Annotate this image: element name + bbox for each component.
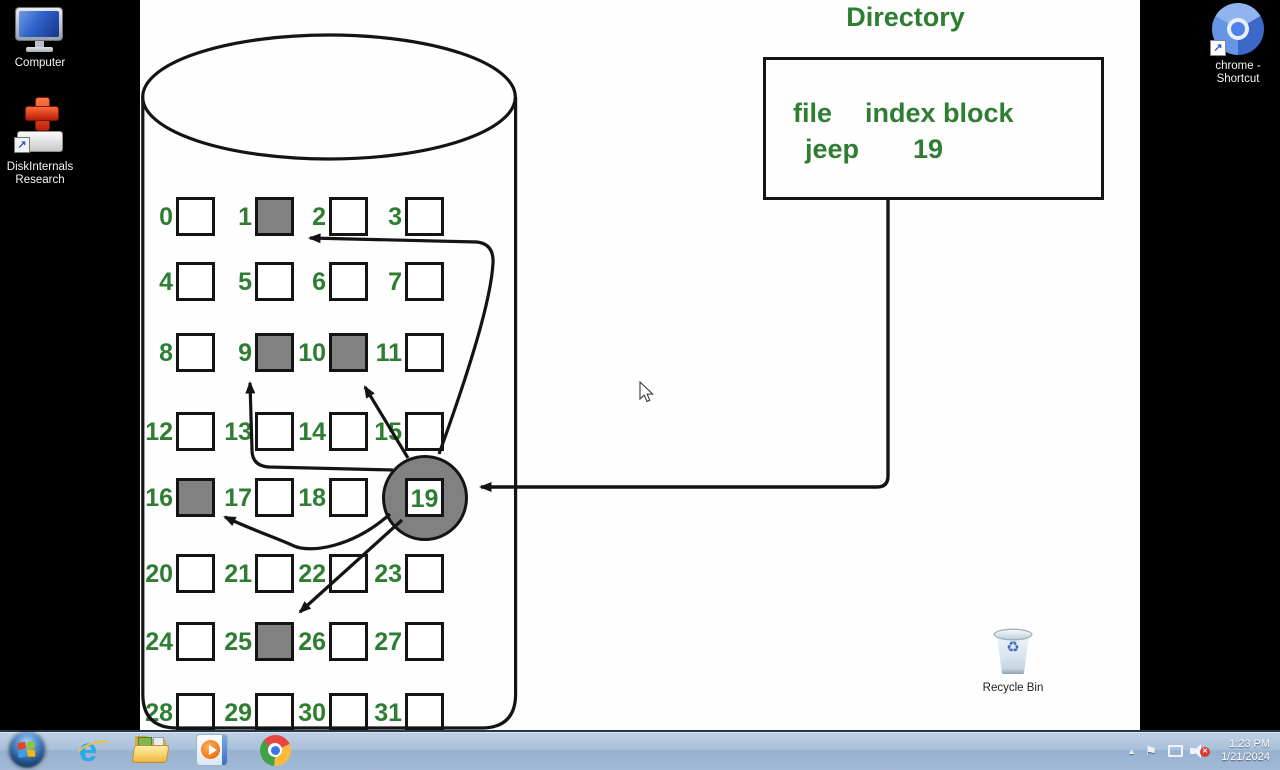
- start-button[interactable]: [8, 732, 46, 768]
- desktop-icon-recycle-bin[interactable]: ♻ Recycle Bin: [978, 624, 1048, 694]
- block-number-31: 31: [372, 700, 402, 726]
- windows-start-icon: [9, 732, 45, 768]
- block-number-19: 19: [408, 486, 441, 512]
- block-number-25: 25: [222, 629, 252, 655]
- volume-muted-icon[interactable]: ✕: [1190, 744, 1208, 758]
- block-number-5: 5: [222, 269, 252, 295]
- taskbar-windows-explorer[interactable]: [132, 732, 170, 768]
- block-number-18: 18: [296, 485, 326, 511]
- desktop-icon-label: Recycle Bin: [978, 682, 1048, 694]
- disk-block-16: [176, 478, 215, 517]
- disk-block-28: [176, 693, 215, 730]
- disk-block-29: [255, 693, 294, 730]
- disk-block-15: [405, 412, 444, 451]
- windows-desktop: { "desktop": { "icons": [ {"id": "comput…: [0, 0, 1280, 768]
- mouse-cursor: [637, 380, 657, 404]
- block-number-24: 24: [143, 629, 173, 655]
- disk-block-13: [255, 412, 294, 451]
- disk-block-23: [405, 554, 444, 593]
- block-number-6: 6: [296, 269, 326, 295]
- taskbar-windows-media-player[interactable]: [194, 732, 230, 768]
- system-tray: ▲ ⚑ ✕ 1:23 PM 1/21/2024: [1128, 732, 1276, 770]
- chrome-icon: [260, 735, 291, 766]
- disk-block-7: [405, 262, 444, 301]
- chevron-up-icon[interactable]: ▲: [1128, 747, 1136, 756]
- block-number-14: 14: [296, 419, 326, 445]
- taskbar: e ▲ ⚑ ✕ 1:23 PM 1/21/2024: [0, 730, 1280, 770]
- disk-block-5: [255, 262, 294, 301]
- block-number-20: 20: [143, 561, 173, 587]
- block-number-0: 0: [143, 204, 173, 230]
- block-number-2: 2: [296, 204, 326, 230]
- block-number-7: 7: [372, 269, 402, 295]
- folder-icon: [134, 736, 168, 764]
- block-number-15: 15: [372, 419, 402, 445]
- disk-block-0: [176, 197, 215, 236]
- shortcut-arrow-icon: ↗: [15, 138, 29, 152]
- disk-block-18: [329, 478, 368, 517]
- recycle-symbol-icon: ♻: [990, 640, 1036, 656]
- taskbar-internet-explorer[interactable]: e: [70, 732, 106, 768]
- block-number-26: 26: [296, 629, 326, 655]
- disk-block-27: [405, 622, 444, 661]
- block-number-17: 17: [222, 485, 252, 511]
- block-number-8: 8: [143, 340, 173, 366]
- mute-x-badge: ✕: [1200, 747, 1210, 757]
- taskbar-chrome[interactable]: [256, 732, 294, 768]
- block-number-28: 28: [143, 700, 173, 726]
- lecture-image-panel: Directory file index block jeep 19 01234…: [140, 0, 1140, 730]
- disk-block-12: [176, 412, 215, 451]
- disk-block-24: [176, 622, 215, 661]
- block-number-21: 21: [222, 561, 252, 587]
- disk-block-10: [329, 333, 368, 372]
- disk-block-9: [255, 333, 294, 372]
- disk-block-8: [176, 333, 215, 372]
- clock-date: 1/21/2024: [1221, 751, 1270, 764]
- disk-block-14: [329, 412, 368, 451]
- disk-block-25: [255, 622, 294, 661]
- block-number-27: 27: [372, 629, 402, 655]
- disk-block-19: 19: [405, 478, 444, 517]
- block-number-30: 30: [296, 700, 326, 726]
- disk-block-26: [329, 622, 368, 661]
- desktop-icon-label: DiskInternals Research: [0, 161, 80, 187]
- disk-block-4: [176, 262, 215, 301]
- disk-block-30: [329, 693, 368, 730]
- block-number-3: 3: [372, 204, 402, 230]
- desktop-icon-computer[interactable]: Computer: [2, 6, 78, 70]
- diskinternals-icon: ↗: [12, 96, 68, 158]
- action-center-flag-icon[interactable]: ⚑: [1145, 743, 1158, 760]
- desktop-icon-label: Computer: [2, 57, 78, 70]
- disk-block-2: [329, 197, 368, 236]
- disk-block-3: [405, 197, 444, 236]
- shortcut-arrow-icon: ↗: [1211, 41, 1225, 55]
- block-number-13: 13: [222, 419, 252, 445]
- computer-icon: [15, 6, 65, 54]
- disk-block-21: [255, 554, 294, 593]
- network-icon[interactable]: [1166, 745, 1181, 758]
- chromium-icon: ↗: [1211, 3, 1265, 57]
- disk-block-1: [255, 197, 294, 236]
- clock-time: 1:23 PM: [1221, 738, 1270, 751]
- internet-explorer-icon: e: [79, 735, 97, 765]
- block-number-9: 9: [222, 340, 252, 366]
- disk-block-22: [329, 554, 368, 593]
- block-number-22: 22: [296, 561, 326, 587]
- block-number-16: 16: [143, 485, 173, 511]
- block-number-11: 11: [372, 340, 402, 366]
- desktop-icon-chrome-shortcut[interactable]: ↗ chrome - Shortcut: [1200, 3, 1276, 86]
- disk-block-17: [255, 478, 294, 517]
- block-number-29: 29: [222, 700, 252, 726]
- disk-block-20: [176, 554, 215, 593]
- disk-block-31: [405, 693, 444, 730]
- block-number-10: 10: [296, 340, 326, 366]
- desktop-icon-diskinternals-research[interactable]: ↗ DiskInternals Research: [0, 96, 80, 187]
- block-number-23: 23: [372, 561, 402, 587]
- taskbar-clock[interactable]: 1:23 PM 1/21/2024: [1221, 738, 1270, 764]
- block-number-12: 12: [143, 419, 173, 445]
- disk-block-grid: 0123456789101112131415161718192021222324…: [140, 0, 1140, 730]
- block-number-4: 4: [143, 269, 173, 295]
- block-number-1: 1: [222, 204, 252, 230]
- disk-block-11: [405, 333, 444, 372]
- recycle-bin-icon: ♻: [990, 624, 1036, 680]
- disk-block-6: [329, 262, 368, 301]
- desktop-icon-label: chrome - Shortcut: [1200, 60, 1276, 86]
- media-player-icon: [197, 735, 227, 765]
